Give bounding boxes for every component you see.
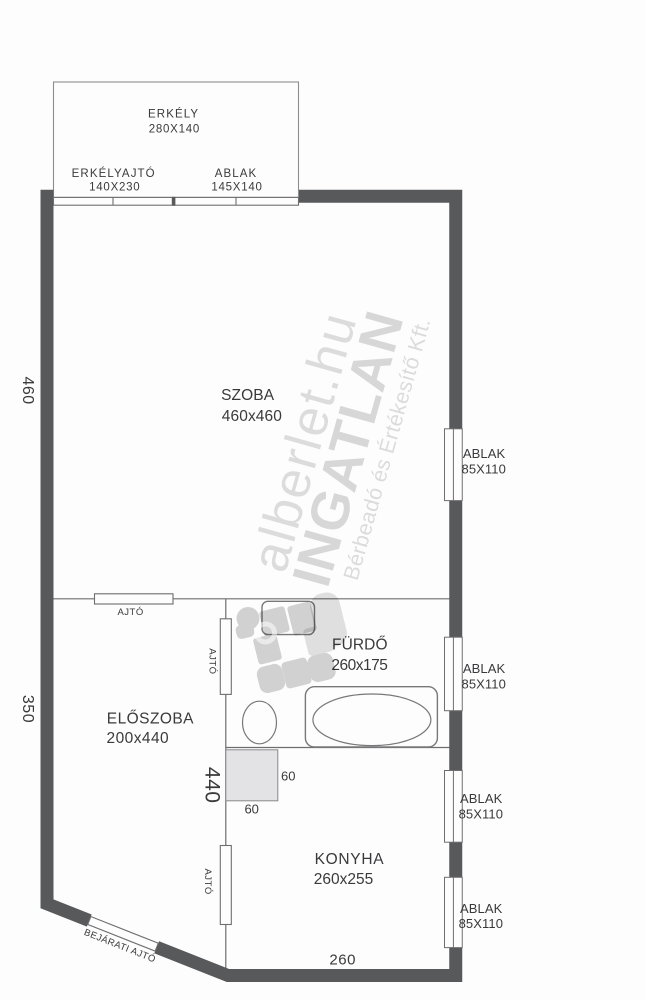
svg-text:AJTÓ: AJTÓ xyxy=(117,607,143,618)
svg-text:ABLAK: ABLAK xyxy=(463,446,506,461)
svg-text:ERKÉLY: ERKÉLY xyxy=(148,107,199,120)
svg-text:280X140: 280X140 xyxy=(149,124,200,136)
svg-text:ABLAK: ABLAK xyxy=(460,901,503,916)
svg-text:AJTÓ: AJTÓ xyxy=(202,868,213,894)
svg-text:60: 60 xyxy=(244,802,258,817)
svg-text:ABLAK: ABLAK xyxy=(463,661,506,676)
svg-text:85X110: 85X110 xyxy=(459,806,503,821)
svg-text:KONYHA: KONYHA xyxy=(315,851,385,868)
svg-text:260x255: 260x255 xyxy=(314,871,373,888)
svg-text:350: 350 xyxy=(19,695,36,723)
svg-text:85X110: 85X110 xyxy=(462,461,506,476)
svg-text:AJTÓ: AJTÓ xyxy=(207,648,218,674)
svg-text:85X110: 85X110 xyxy=(462,676,506,691)
svg-text:200x440: 200x440 xyxy=(107,730,170,747)
svg-text:60: 60 xyxy=(281,768,295,783)
svg-text:ERKÉLYAJTÓ: ERKÉLYAJTÓ xyxy=(72,167,156,180)
svg-text:ABLAK: ABLAK xyxy=(215,168,258,180)
svg-text:140X230: 140X230 xyxy=(89,182,140,194)
svg-text:ELŐSZOBA: ELŐSZOBA xyxy=(107,711,194,728)
svg-text:460x460: 460x460 xyxy=(222,408,282,425)
svg-text:85X110: 85X110 xyxy=(459,916,503,931)
svg-text:460: 460 xyxy=(19,376,36,404)
svg-text:440: 440 xyxy=(201,767,224,804)
svg-text:260x175: 260x175 xyxy=(331,657,387,674)
svg-text:260: 260 xyxy=(329,952,356,969)
svg-text:ABLAK: ABLAK xyxy=(460,791,503,806)
svg-text:145X140: 145X140 xyxy=(211,182,262,194)
svg-text:SZOBA: SZOBA xyxy=(221,387,275,404)
